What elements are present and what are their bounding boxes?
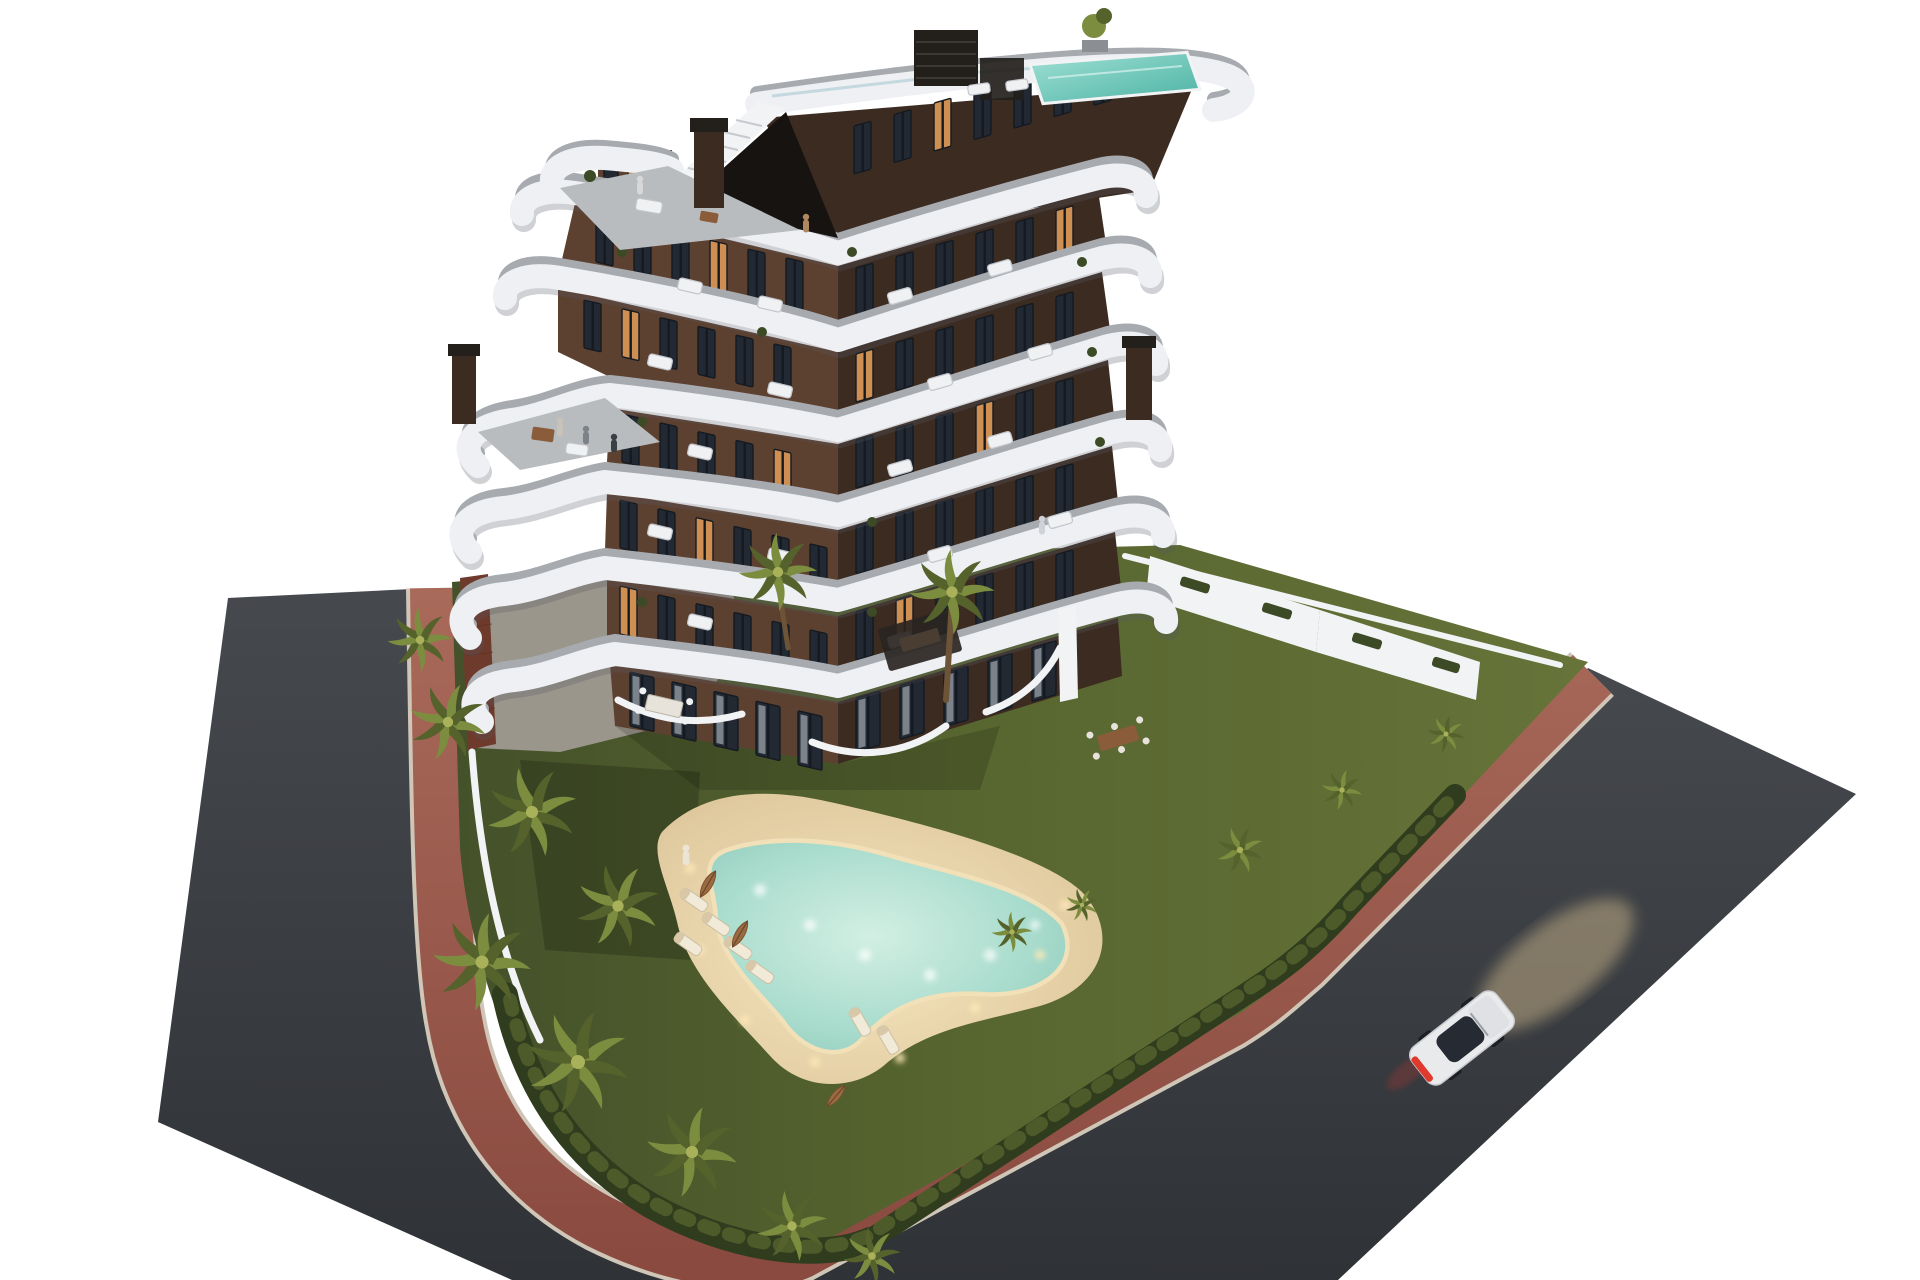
rooftop-planter-tree (1082, 8, 1112, 52)
rendering-canvas (0, 0, 1920, 1280)
scene-illustration (0, 0, 1920, 1280)
person-at-pool (682, 845, 689, 866)
